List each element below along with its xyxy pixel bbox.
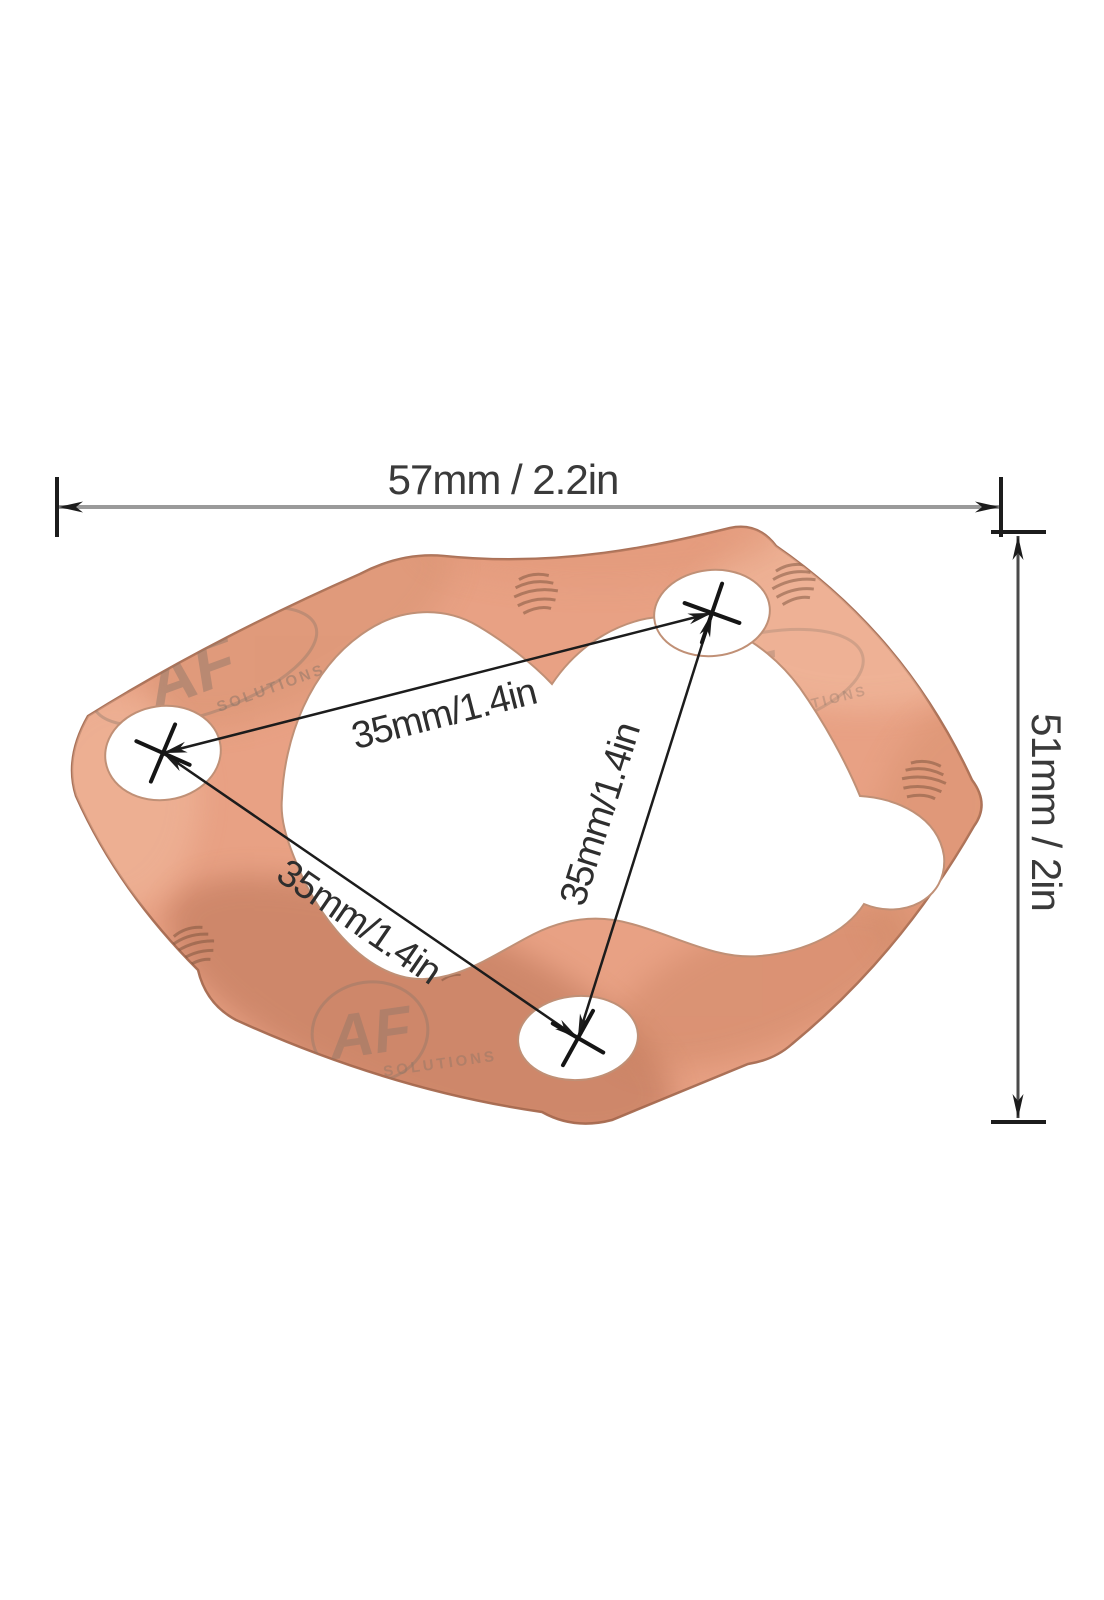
gasket-diagram-svg: AF SOLUTIONS AF SOLUTIONS AF SOLUTIONS S…: [0, 0, 1104, 1600]
height-dimension: 51mm / 2in: [991, 532, 1070, 1122]
height-dimension-label: 51mm / 2in: [1023, 713, 1070, 911]
product-dimension-image: AF SOLUTIONS AF SOLUTIONS AF SOLUTIONS S…: [0, 0, 1104, 1600]
width-dimension-label: 57mm / 2.2in: [388, 456, 619, 503]
width-dimension: 57mm / 2.2in: [57, 456, 1001, 537]
gasket: AF SOLUTIONS AF SOLUTIONS AF SOLUTIONS S…: [30, 482, 1030, 1200]
